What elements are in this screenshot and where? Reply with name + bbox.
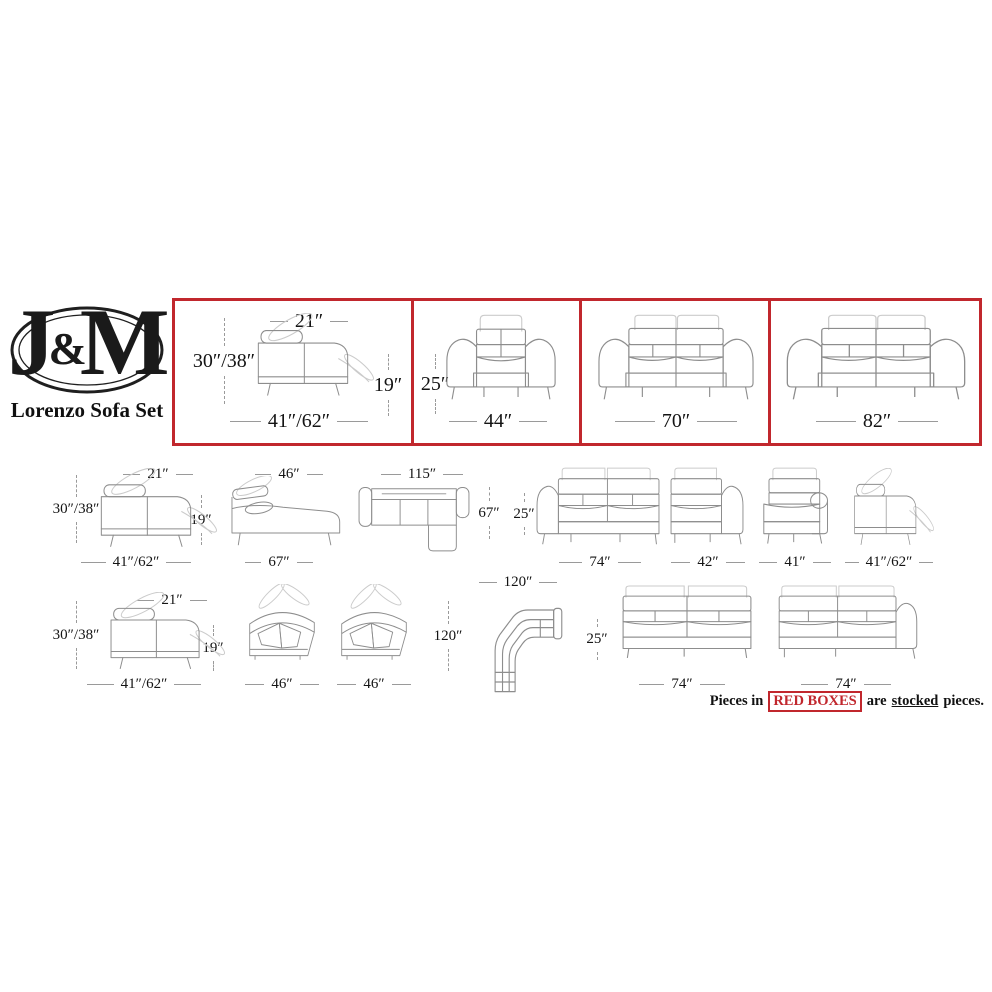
dim-depth: 67″ — [472, 482, 506, 544]
armchair-drawing — [438, 313, 564, 407]
piece-sectional-top: 115″ 67″ — [348, 450, 508, 572]
dim-width: 70″ — [608, 411, 744, 431]
spec-sheet-canvas: J&M Lorenzo Sofa Set 21″ 30″/38″ 19″ 41″… — [0, 0, 992, 992]
dim-width: 44″ — [442, 411, 554, 431]
right-arm-chair-drawing — [666, 466, 748, 552]
piece-chaise-side: 46″ 67″ — [212, 450, 352, 572]
note-prefix: Pieces in — [710, 693, 764, 710]
corner-wedge-drawing — [334, 584, 414, 668]
dim-label: 74″ — [671, 677, 692, 692]
dim-width: 74″ — [552, 552, 648, 572]
stocked-cell-armchair: 25″ 44″ — [411, 298, 582, 446]
dim-width: 41″ — [752, 552, 838, 572]
piece-corner-sectional-top: 120″ 120″ — [424, 570, 569, 696]
dim-label: 46″ — [271, 677, 292, 692]
stocked-cell-recliner-side: 21″ 30″/38″ 19″ 41″/62″ — [172, 298, 414, 446]
sofa-drawing — [777, 313, 975, 407]
dim-depth: 41″/62″ — [223, 411, 375, 431]
piece-recliner-side-2: 41″/62″ — [838, 450, 940, 572]
dim-label: 70″ — [662, 411, 690, 431]
jm-logo: J&M Lorenzo Sofa Set — [8, 292, 166, 428]
stocked-cell-loveseat: 70″ — [579, 298, 771, 446]
red-boxes-highlight: RED BOXES — [768, 691, 861, 712]
dim-depth: 41″/62″ — [74, 552, 198, 572]
dim-length: 120″ — [472, 572, 564, 592]
stocked-note: Pieces in RED BOXES are stocked pieces. — [710, 691, 984, 712]
dim-label: 44″ — [484, 411, 512, 431]
piece-left-arm-sofa: 25″ 74″ — [506, 450, 666, 572]
armless-sofa-drawing — [616, 584, 758, 666]
dim-label: 19″ — [374, 375, 402, 395]
piece-corner-wedge: 46″ — [330, 578, 418, 696]
dim-label: 41″/62″ — [866, 555, 913, 570]
dim-height: 25″ — [580, 614, 614, 664]
dim-label: 41″/62″ — [268, 411, 330, 431]
loveseat-drawing — [590, 313, 762, 407]
piece-chaise-front: 41″ — [752, 450, 838, 572]
piece-armless-sofa: 25″ 74″ — [572, 578, 768, 696]
dim-label: 120″ — [504, 575, 533, 590]
piece-right-arm-sofa: 74″ — [772, 578, 924, 696]
piece-corner-wedge: 46″ — [238, 578, 326, 696]
piece-right-arm-chair: 42″ — [662, 450, 754, 572]
dim-label: 41″/62″ — [121, 677, 168, 692]
note-middle: are — [867, 693, 887, 710]
note-suffix: pieces. — [943, 693, 984, 710]
recliner-side-drawing — [80, 468, 220, 552]
dim-label: 82″ — [863, 411, 891, 431]
dim-label: 74″ — [835, 677, 856, 692]
recliner-side-drawing — [237, 313, 377, 401]
note-stocked: stocked — [892, 693, 939, 710]
dim-label: 67″ — [478, 506, 499, 521]
chaise-front-drawing — [756, 466, 834, 552]
recliner-side-drawing — [840, 468, 936, 550]
dim-depth: 41″/62″ — [838, 552, 940, 572]
stocked-pieces-strip: 21″ 30″/38″ 19″ 41″/62″ 25″ 44″ 70″ 82″ — [172, 298, 982, 446]
dim-label: 42″ — [697, 555, 718, 570]
dim-width: 46″ — [238, 674, 326, 694]
left-arm-sofa-drawing — [532, 466, 664, 552]
dim-width: 82″ — [809, 411, 945, 431]
dim-label: 46″ — [363, 677, 384, 692]
dim-width: 46″ — [330, 674, 418, 694]
logo-letter-j: J — [8, 289, 54, 395]
dim-label: 41″/62″ — [113, 555, 160, 570]
stocked-cell-sofa: 82″ — [768, 298, 982, 446]
dim-width: 42″ — [664, 552, 752, 572]
recliner-side-drawing — [90, 592, 228, 674]
dim-label: 25″ — [586, 632, 607, 647]
right-arm-sofa-drawing — [774, 584, 920, 666]
dim-label: 41″ — [784, 555, 805, 570]
dim-label: 74″ — [589, 555, 610, 570]
corner-sectional-top-drawing — [464, 590, 564, 694]
dim-depth: 41″/62″ — [80, 674, 208, 694]
brand-title: Lorenzo Sofa Set — [4, 398, 170, 423]
dim-label: 120″ — [434, 629, 463, 644]
dim-label: 67″ — [268, 555, 289, 570]
sectional-top-drawing — [354, 480, 474, 554]
dim-length: 67″ — [238, 552, 320, 572]
chaise-side-drawing — [220, 476, 346, 552]
logo-letter-m: M — [80, 289, 168, 395]
corner-wedge-drawing — [242, 584, 322, 668]
